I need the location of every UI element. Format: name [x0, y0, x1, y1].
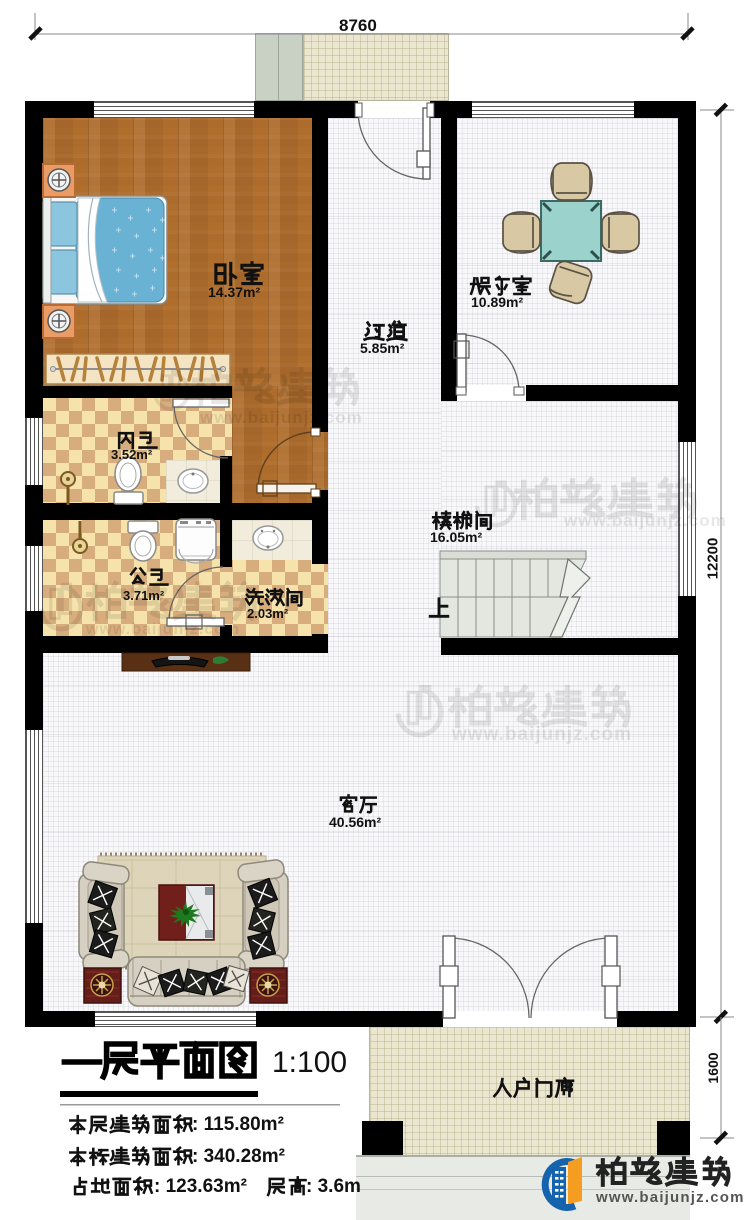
svg-text:www.baijunjz.com: www.baijunjz.com: [563, 511, 727, 530]
svg-text:www.baijunjz.com: www.baijunjz.com: [451, 724, 632, 745]
svg-text:www.baijunjz.com: www.baijunjz.com: [199, 408, 363, 427]
svg-text:www.baijunjz.com: www.baijunjz.com: [85, 621, 240, 638]
